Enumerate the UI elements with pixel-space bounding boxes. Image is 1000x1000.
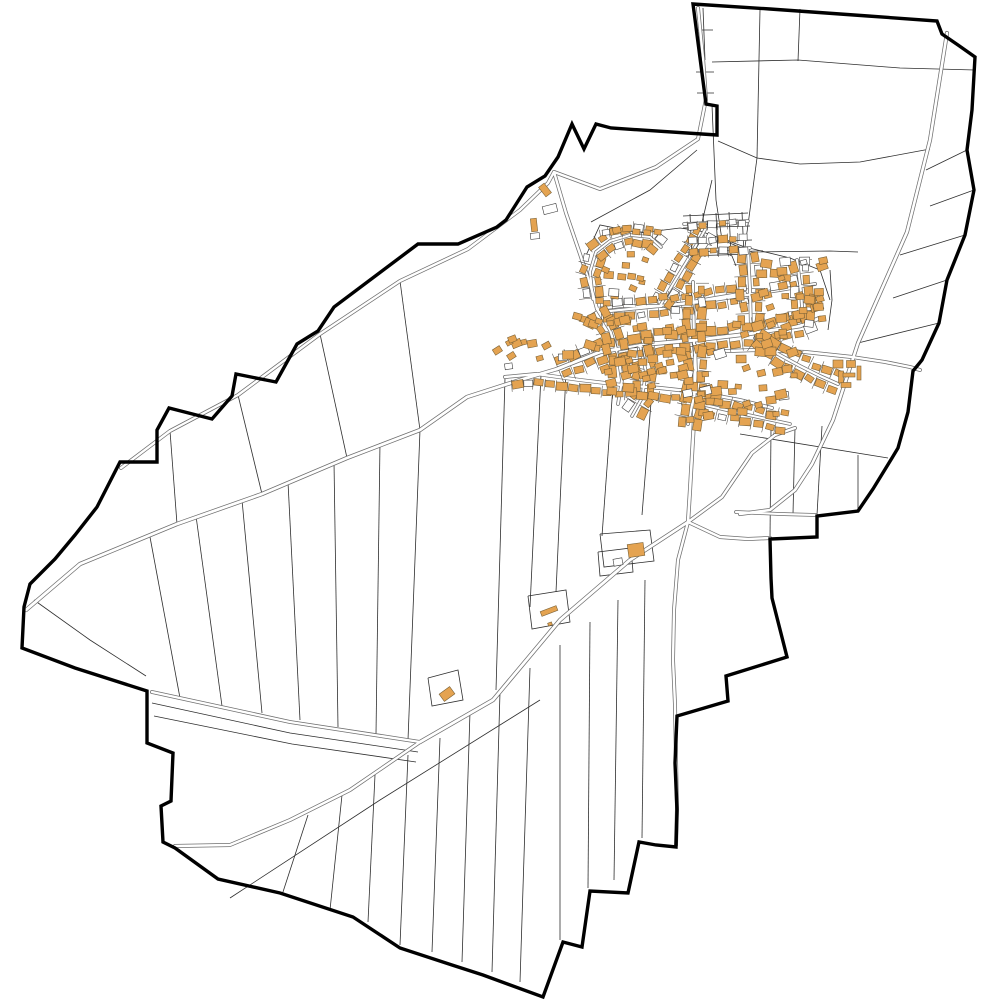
building-footprint — [818, 315, 826, 322]
building-footprint — [624, 298, 633, 305]
building-footprint — [580, 277, 589, 287]
building-footprint — [760, 259, 772, 269]
building-footprint — [613, 558, 623, 566]
building-footprint — [757, 270, 767, 278]
building-footprint — [607, 387, 617, 395]
building-footprint — [643, 230, 650, 236]
building-footprint — [580, 384, 591, 392]
building-footprint — [794, 330, 804, 338]
building-footprint — [718, 414, 727, 421]
building-footprint — [583, 254, 590, 262]
building-footprint — [813, 303, 823, 311]
building-footprint — [659, 394, 671, 403]
building-footprint — [728, 408, 737, 415]
building-footprint — [717, 327, 728, 335]
building-footprint — [719, 220, 726, 225]
building-footprint — [698, 297, 706, 307]
building-footprint — [709, 237, 717, 244]
building-footprint — [797, 294, 805, 300]
building-footprint — [663, 327, 672, 334]
building-footprint — [718, 235, 728, 243]
building-footprint — [676, 347, 686, 355]
building-footprint — [766, 396, 777, 405]
building-footprint — [622, 262, 630, 268]
building-footprint — [627, 364, 639, 374]
building-footprint — [595, 286, 604, 297]
building-footprint — [718, 302, 727, 309]
building-footprint — [650, 311, 659, 318]
building-footprint — [637, 322, 647, 330]
building-footprint — [683, 309, 690, 319]
building-footprint — [698, 237, 706, 244]
building-footprint — [779, 329, 787, 335]
building-footprint — [775, 427, 785, 435]
building-footprint — [638, 312, 646, 318]
building-footprint — [696, 323, 706, 331]
building-footprint — [602, 229, 610, 235]
building-footprint — [791, 373, 797, 378]
building-footprint — [545, 380, 554, 387]
building-footprint — [603, 300, 610, 306]
building-footprint — [686, 416, 694, 422]
building-footprint — [698, 286, 704, 294]
building-footprint — [607, 321, 614, 326]
building-footprint — [781, 409, 789, 416]
building-footprint — [591, 387, 600, 394]
building-footprint — [739, 265, 748, 276]
building-footprint — [739, 221, 746, 227]
building-footprint — [700, 360, 707, 369]
building-footprint — [738, 277, 745, 287]
map-background — [0, 0, 1000, 1000]
building-footprint — [736, 355, 746, 363]
building-footprint — [847, 361, 856, 368]
building-footprint — [803, 275, 810, 284]
building-footprint — [622, 225, 631, 232]
building-footprint — [750, 252, 759, 263]
building-footprint — [740, 302, 748, 312]
building-footprint — [678, 417, 686, 427]
building-footprint — [753, 420, 763, 428]
building-footprint — [778, 282, 788, 290]
building-footprint — [595, 277, 602, 285]
building-footprint — [818, 257, 828, 265]
building-footprint — [689, 237, 697, 244]
building-footprint — [697, 307, 707, 320]
building-footprint — [628, 273, 636, 280]
building-footprint — [739, 418, 750, 426]
building-footprint — [619, 338, 628, 349]
building-footprint — [780, 257, 791, 266]
building-footprint — [728, 388, 736, 394]
building-footprint — [681, 404, 691, 416]
building-footprint — [654, 328, 664, 335]
building-footprint — [604, 368, 612, 375]
building-footprint — [524, 380, 533, 387]
building-footprint — [644, 337, 652, 344]
building-footprint — [648, 382, 656, 389]
building-footprint — [714, 398, 723, 406]
building-footprint — [612, 298, 622, 306]
building-footprint — [719, 247, 727, 254]
building-footprint — [627, 542, 645, 557]
building-footprint — [791, 300, 798, 309]
building-footprint — [654, 229, 662, 235]
building-footprint — [512, 379, 524, 389]
building-footprint — [504, 363, 512, 370]
building-footprint — [648, 296, 657, 303]
building-footprint — [730, 341, 741, 349]
building-footprint — [637, 275, 644, 281]
building-footprint — [833, 360, 843, 368]
building-footprint — [623, 383, 635, 392]
building-footprint — [702, 371, 709, 376]
building-footprint — [663, 350, 672, 357]
building-footprint — [636, 391, 647, 400]
building-footprint — [530, 218, 537, 232]
building-footprint — [534, 378, 544, 386]
building-footprint — [804, 320, 814, 328]
building-footprint — [648, 355, 658, 363]
building-footprint — [568, 384, 578, 392]
building-footprint — [666, 359, 674, 366]
building-footprint — [556, 382, 568, 391]
building-footprint — [530, 233, 540, 240]
building-footprint — [735, 384, 742, 389]
building-footprint — [648, 391, 659, 400]
building-footprint — [699, 223, 707, 229]
building-footprint — [627, 350, 637, 358]
building-footprint — [715, 286, 724, 293]
building-footprint — [527, 339, 538, 348]
building-footprint — [756, 333, 763, 338]
building-footprint — [617, 273, 626, 280]
building-footprint — [686, 285, 692, 293]
building-footprint — [772, 367, 783, 376]
building-footprint — [799, 307, 807, 313]
building-footprint — [685, 296, 692, 306]
building-footprint — [776, 314, 787, 323]
building-footprint — [759, 385, 767, 392]
building-footprint — [703, 411, 714, 420]
building-footprint — [660, 309, 669, 316]
building-footprint — [688, 222, 698, 230]
building-footprint — [733, 321, 741, 328]
building-footprint — [627, 334, 641, 345]
building-footprint — [562, 350, 573, 359]
building-footprint — [773, 411, 780, 416]
building-footprint — [687, 329, 697, 337]
building-footprint — [777, 267, 787, 275]
building-footprint — [804, 295, 815, 304]
building-footprint — [583, 289, 591, 298]
building-footprint — [627, 251, 634, 257]
building-footprint — [729, 237, 736, 242]
building-footprint — [814, 288, 824, 296]
building-footprint — [689, 248, 698, 255]
building-footprint — [638, 359, 647, 366]
building-footprint — [659, 293, 668, 300]
building-footprint — [671, 307, 679, 314]
building-footprint — [614, 357, 626, 367]
building-footprint — [782, 365, 792, 374]
building-footprint — [753, 278, 759, 286]
building-footprint — [755, 302, 762, 311]
building-footprint — [726, 285, 736, 293]
building-footprint — [736, 289, 745, 300]
building-footprint — [841, 383, 851, 388]
map-stage — [0, 0, 1000, 1000]
building-footprint — [672, 395, 680, 401]
cadastral-map — [0, 0, 1000, 1000]
building-footprint — [632, 239, 642, 248]
building-footprint — [790, 281, 797, 287]
building-footprint — [782, 293, 789, 298]
building-footprint — [739, 247, 749, 255]
building-footprint — [843, 373, 855, 377]
building-footprint — [682, 389, 692, 398]
building-footprint — [710, 248, 716, 253]
building-footprint — [596, 298, 604, 304]
building-footprint — [738, 408, 748, 415]
building-footprint — [739, 234, 747, 241]
building-footprint — [708, 221, 717, 228]
building-footprint — [717, 341, 727, 349]
building-footprint — [729, 219, 736, 225]
building-footprint — [636, 297, 647, 306]
building-footprint — [624, 238, 633, 246]
building-footprint — [710, 386, 722, 396]
building-footprint — [642, 375, 650, 382]
building-footprint — [699, 249, 708, 256]
building-footprint — [729, 246, 738, 254]
building-footprint — [697, 331, 706, 342]
building-footprint — [697, 346, 707, 358]
building-footprint — [857, 366, 861, 380]
building-footprint — [609, 288, 619, 296]
building-footprint — [632, 229, 640, 235]
